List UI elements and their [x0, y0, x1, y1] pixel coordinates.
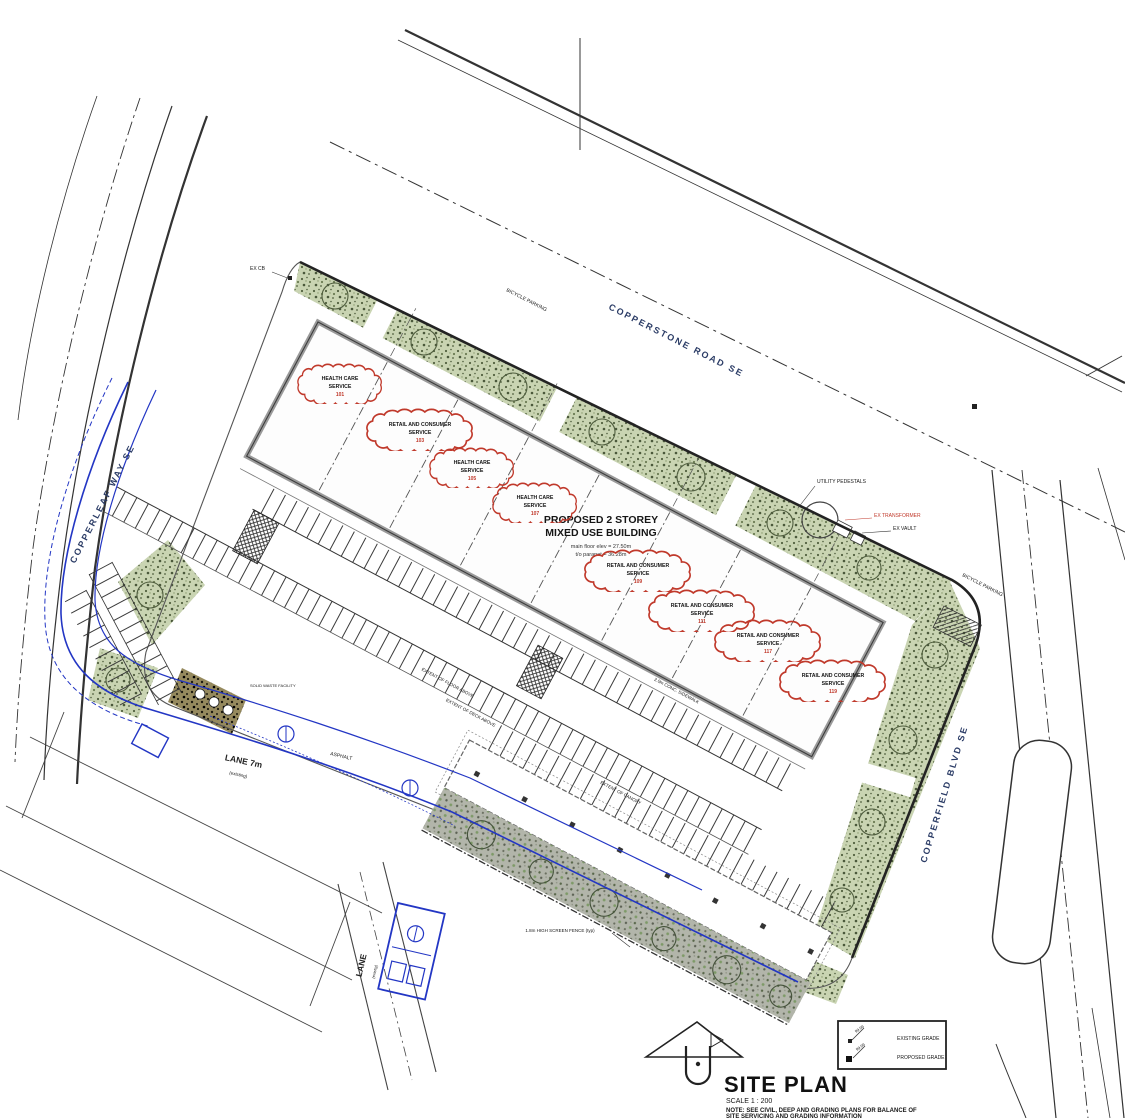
- screen-fence-label: 1.8m HIGH SCREEN FENCE (typ): [525, 928, 595, 933]
- vault-rect: [132, 724, 169, 758]
- cloud-label: HEALTH CARE: [322, 376, 359, 382]
- lane-west-label: LANE 7m: [224, 752, 263, 770]
- cloud-label: RETAIL AND CONSUMER: [389, 422, 452, 428]
- molok-bin: [195, 689, 205, 699]
- building-elev-line1: main floor elev = 27.50m: [571, 544, 632, 550]
- bottom-right-line: [1092, 1008, 1110, 1118]
- enclosure-cell: [388, 961, 407, 982]
- cloud-number: 117: [764, 649, 772, 655]
- ex-transformer-label: EX TRANSFORMER: [874, 513, 921, 519]
- drawing-note-line2: SITE SERVICING AND GRADING INFORMATION: [726, 1114, 862, 1118]
- cloud-label: SERVICE: [409, 430, 432, 436]
- existing-grade-label: EXISTING GRADE: [897, 1036, 940, 1042]
- cloud-number: 111: [698, 619, 706, 625]
- title-block: SITE PLAN SCALE 1 : 200 NOTE: SEE CIVIL,…: [646, 1021, 946, 1118]
- road-copperfield: [990, 468, 1125, 1118]
- bottom-curve-stub: [996, 1044, 1026, 1118]
- ex-vault-leader: [862, 531, 891, 533]
- blue-enclosure: [378, 903, 445, 1000]
- copperstone-north-edge: [405, 30, 1125, 383]
- cloud-number: 107: [531, 511, 540, 517]
- cloud-label: SERVICE: [461, 468, 484, 474]
- north-arrow-dot: [696, 1062, 700, 1066]
- site-plan-page: PROPOSED 2 STOREY MIXED USE BUILDING mai…: [0, 0, 1125, 1118]
- asphalt-label: ASPHALT: [330, 751, 353, 762]
- enclosure-mark: [414, 926, 418, 942]
- lane-south-sub: (exist'g): [371, 964, 379, 979]
- cloud-label: HEALTH CARE: [517, 495, 554, 501]
- enclosure-divider: [392, 947, 431, 956]
- drawing-scale: SCALE 1 : 200: [726, 1098, 772, 1105]
- blue-manhole-2: [402, 780, 418, 796]
- copperstone-north-edge-inner: [398, 40, 1122, 392]
- ex-vault-label: EX VAULT: [893, 526, 916, 532]
- cloud-number: 119: [829, 689, 837, 695]
- cloud-label: RETAIL AND CONSUMER: [607, 563, 670, 569]
- catch-basin: [972, 404, 977, 409]
- lane-south-west-edge: [338, 884, 388, 1090]
- building-title-line1: PROPOSED 2 STOREY: [544, 514, 658, 526]
- ex-cb-leader: [272, 272, 290, 279]
- blue-vault-box: [132, 724, 169, 758]
- lane-west-sub: (existing): [229, 770, 248, 779]
- cloud-label: HEALTH CARE: [454, 460, 491, 466]
- adjacent-lot-lines: [0, 712, 436, 1090]
- bicycle-parking-right-label: BICYCLE PARKING: [961, 572, 1004, 598]
- median-island: [990, 737, 1075, 966]
- cloud-label: SERVICE: [627, 571, 650, 577]
- cloud-label: SERVICE: [524, 503, 547, 509]
- bicycle-parking-top-label: BICYCLE PARKING: [505, 287, 548, 313]
- cloud-number: 109: [634, 579, 643, 585]
- blue-manhole-1: [278, 726, 294, 742]
- drawing-title: SITE PLAN: [724, 1072, 848, 1097]
- enclosure-cell: [406, 965, 425, 986]
- cloud-label: RETAIL AND CONSUMER: [802, 673, 865, 679]
- utility-pedestals-label: UTILITY PEDESTALS: [817, 479, 867, 485]
- cloud-number: 101: [336, 392, 345, 398]
- cloud-label: SERVICE: [691, 611, 714, 617]
- lot-cross-line: [22, 712, 64, 818]
- waste-facility-label: SOLID WASTE FACILITY: [250, 683, 296, 688]
- existing-grade-marker: [848, 1039, 852, 1043]
- lot-line: [6, 806, 352, 980]
- ex-transformer-leader: [845, 518, 872, 520]
- molok-bin: [223, 705, 233, 715]
- cloud-number: 105: [468, 476, 477, 482]
- cloud-label: RETAIL AND CONSUMER: [737, 633, 800, 639]
- ex-cb-label: EX CB: [250, 266, 266, 272]
- north-arrow-roof: [646, 1022, 742, 1057]
- proposed-grade-label: PROPOSED GRADE: [897, 1055, 945, 1061]
- building-title-line2: MIXED USE BUILDING: [545, 527, 656, 539]
- legend-box: 99.99 EXISTING GRADE 99.99 PROPOSED GRAD…: [838, 1021, 946, 1069]
- cloud-label: RETAIL AND CONSUMER: [671, 603, 734, 609]
- cloud-number: 103: [416, 438, 425, 444]
- lot-cross-line: [310, 902, 350, 1006]
- copperfield-far-line: [1098, 468, 1125, 560]
- proposed-grade-marker: [846, 1056, 852, 1062]
- lot-line: [0, 870, 322, 1032]
- cloud-label: SERVICE: [822, 681, 845, 687]
- copperfield-east-edge: [1060, 480, 1124, 1118]
- ex-cb-marker: [288, 276, 292, 280]
- copperleaf-far-line: [18, 96, 97, 420]
- molok-bin: [209, 697, 219, 707]
- lot-line: [30, 737, 382, 913]
- cloud-label: SERVICE: [329, 384, 352, 390]
- lane-dotted-line: [210, 716, 455, 826]
- cloud-label: SERVICE: [757, 641, 780, 647]
- utility-pedestals-leader: [798, 486, 815, 508]
- site-plan-drawing: PROPOSED 2 STOREY MIXED USE BUILDING mai…: [0, 0, 1125, 1118]
- copperstone-label: COPPERSTONE ROAD SE: [607, 302, 746, 379]
- waste-facility-pad: [168, 668, 246, 734]
